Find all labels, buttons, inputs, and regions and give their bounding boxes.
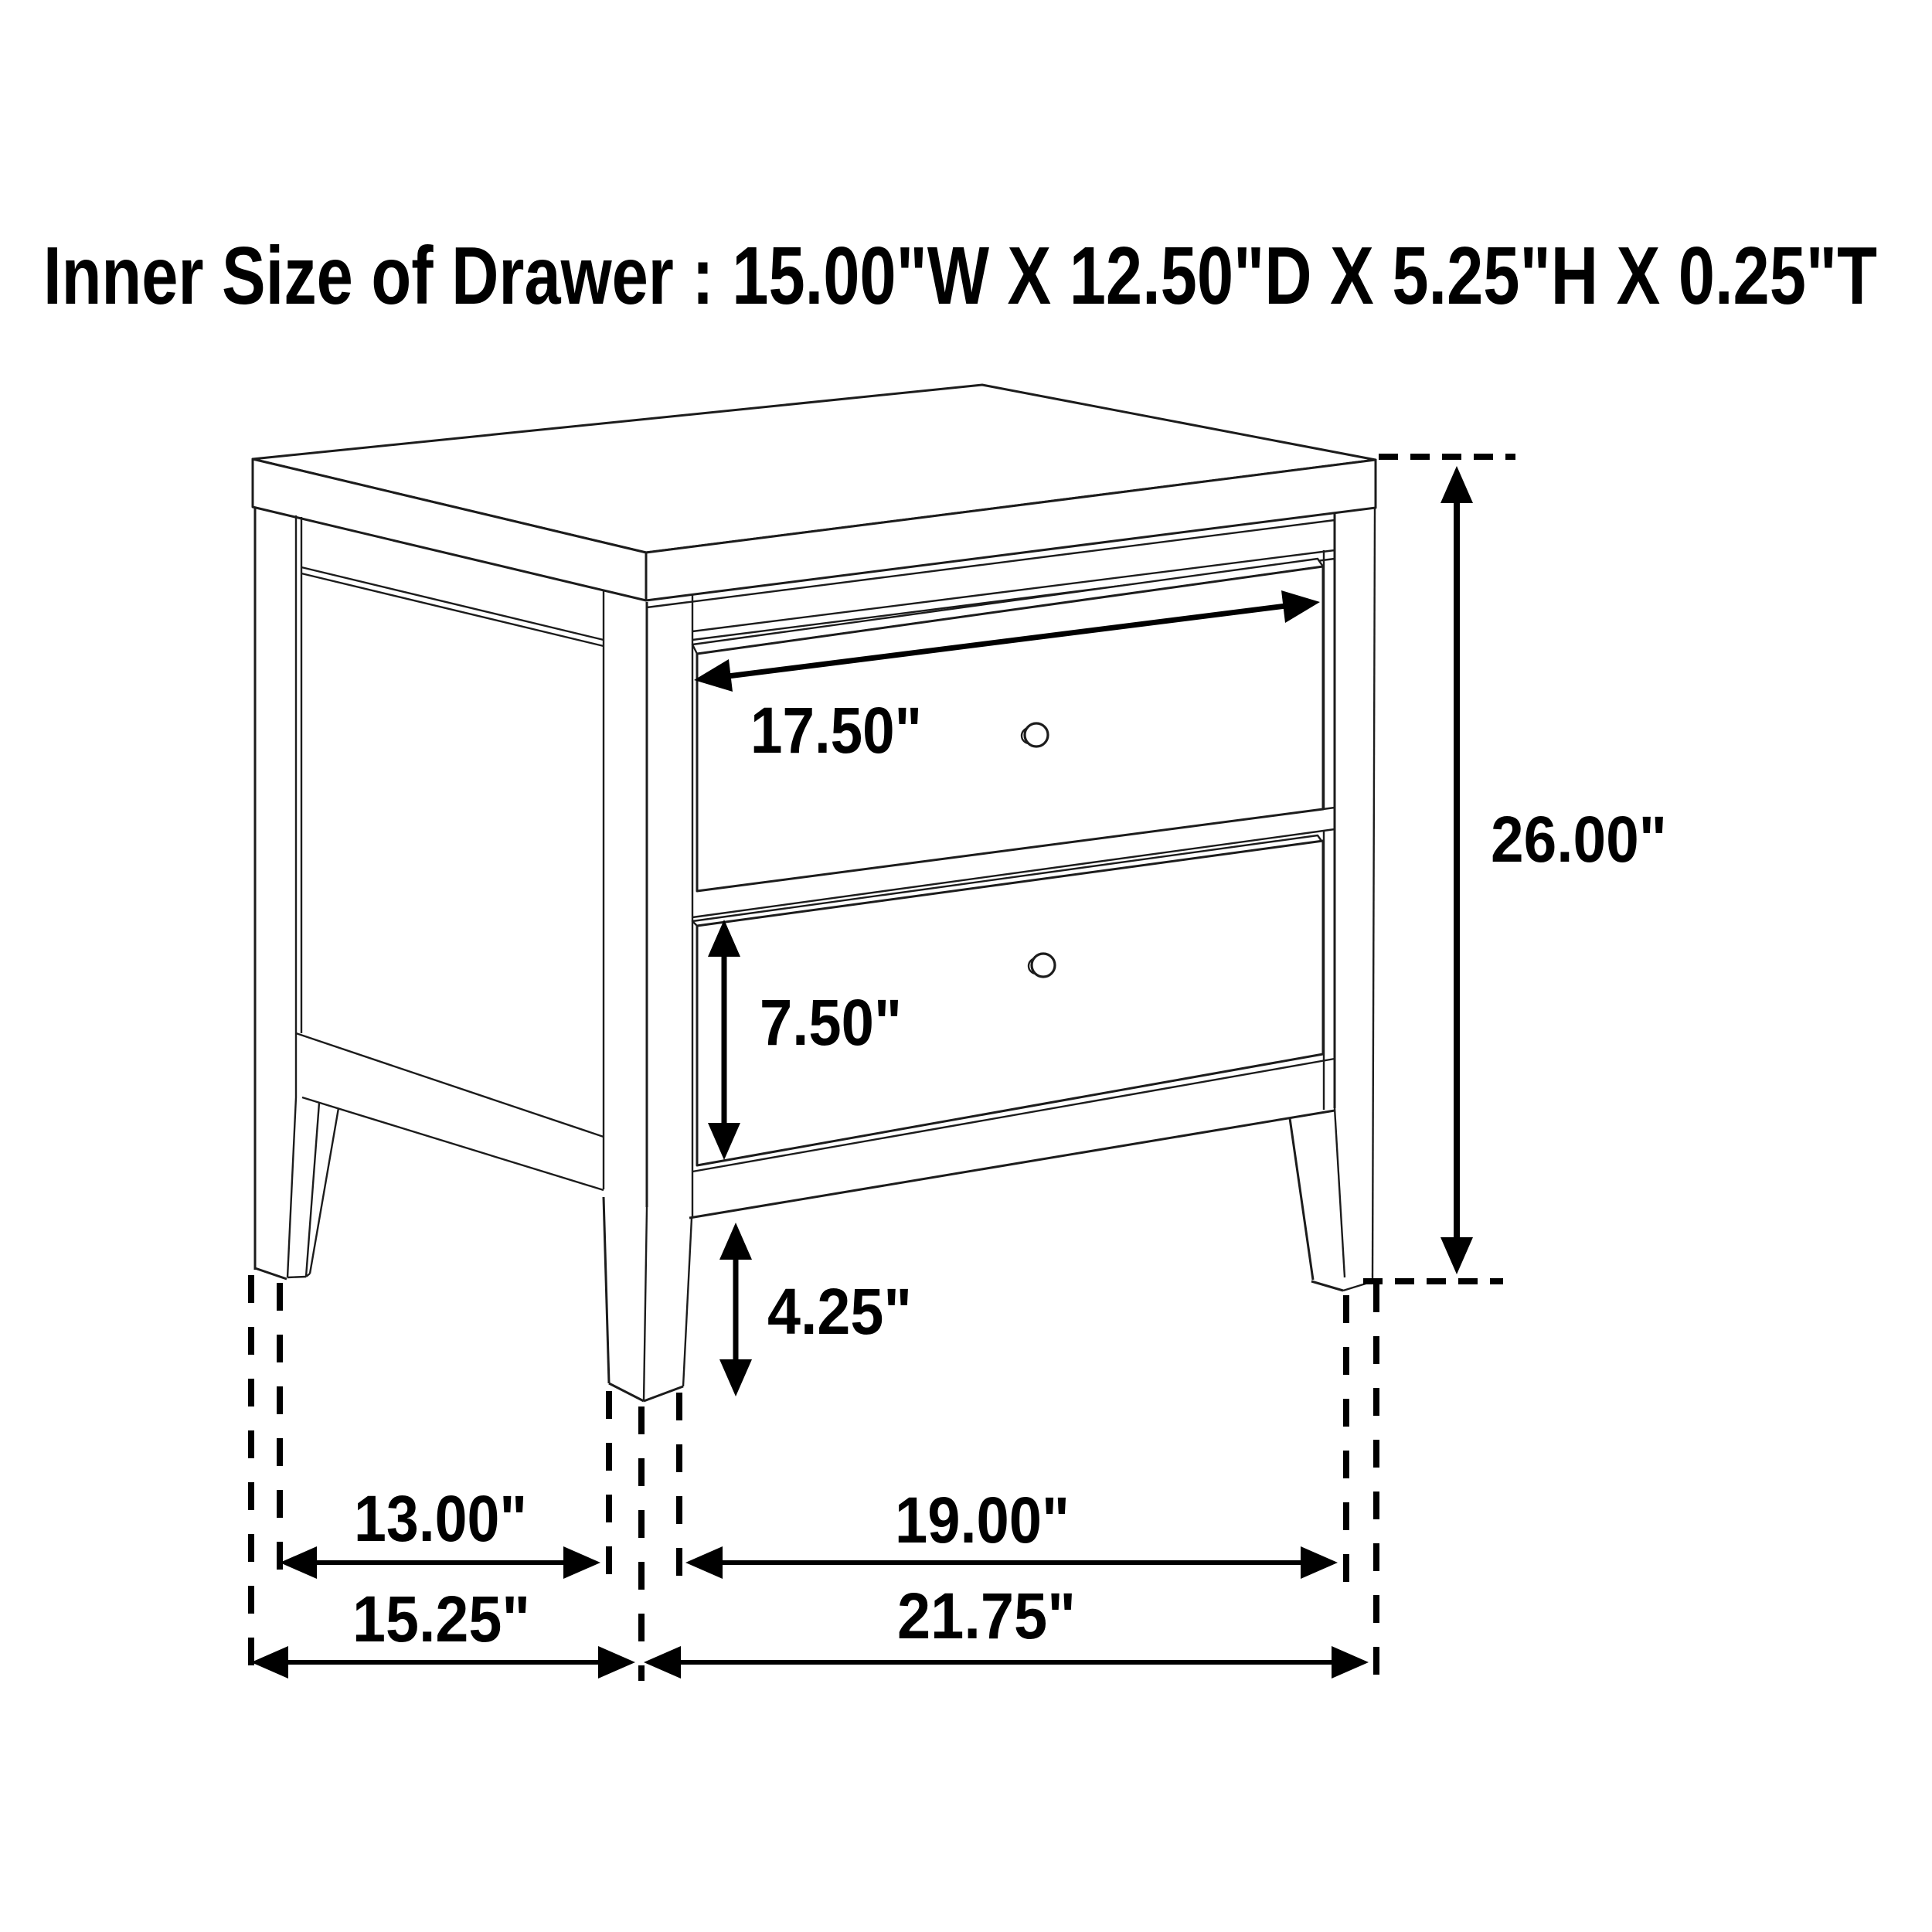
svg-text:17.50": 17.50" (750, 694, 922, 767)
svg-text:21.75": 21.75" (897, 1580, 1076, 1652)
svg-text:7.50": 7.50" (760, 986, 902, 1059)
svg-text:26.00": 26.00" (1491, 803, 1667, 876)
svg-text:4.25": 4.25" (767, 1275, 912, 1348)
svg-text:13.00": 13.00" (354, 1482, 527, 1555)
svg-text:Inner Size of Drawer : 15.00"W: Inner Size of Drawer : 15.00"W X 12.50"D… (43, 230, 1877, 321)
svg-text:15.25": 15.25" (352, 1583, 530, 1655)
svg-text:19.00": 19.00" (895, 1484, 1070, 1556)
